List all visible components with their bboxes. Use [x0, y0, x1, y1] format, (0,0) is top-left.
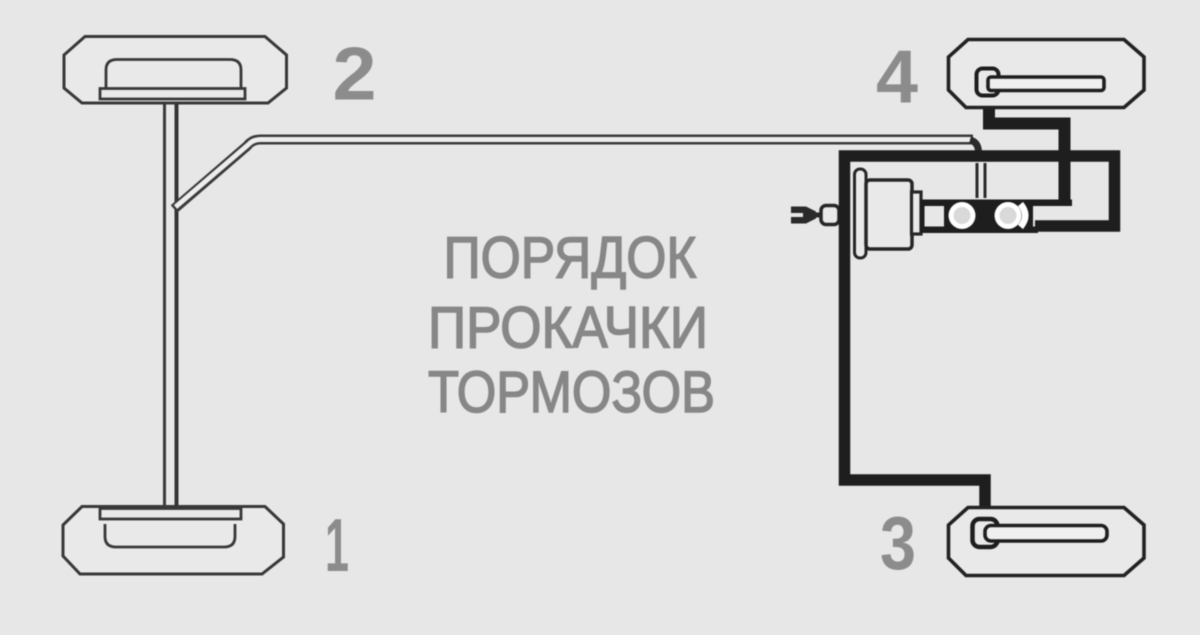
- svg-text:ТОРМОЗОВ: ТОРМОЗОВ: [428, 360, 715, 425]
- svg-text:ПРОКАЧКИ: ПРОКАЧКИ: [428, 296, 708, 361]
- svg-text:ПОРЯДОК: ПОРЯДОК: [444, 226, 697, 291]
- svg-text:2: 2: [333, 32, 377, 116]
- svg-text:3: 3: [880, 501, 916, 585]
- svg-text:1: 1: [325, 503, 349, 587]
- svg-text:4: 4: [876, 35, 918, 119]
